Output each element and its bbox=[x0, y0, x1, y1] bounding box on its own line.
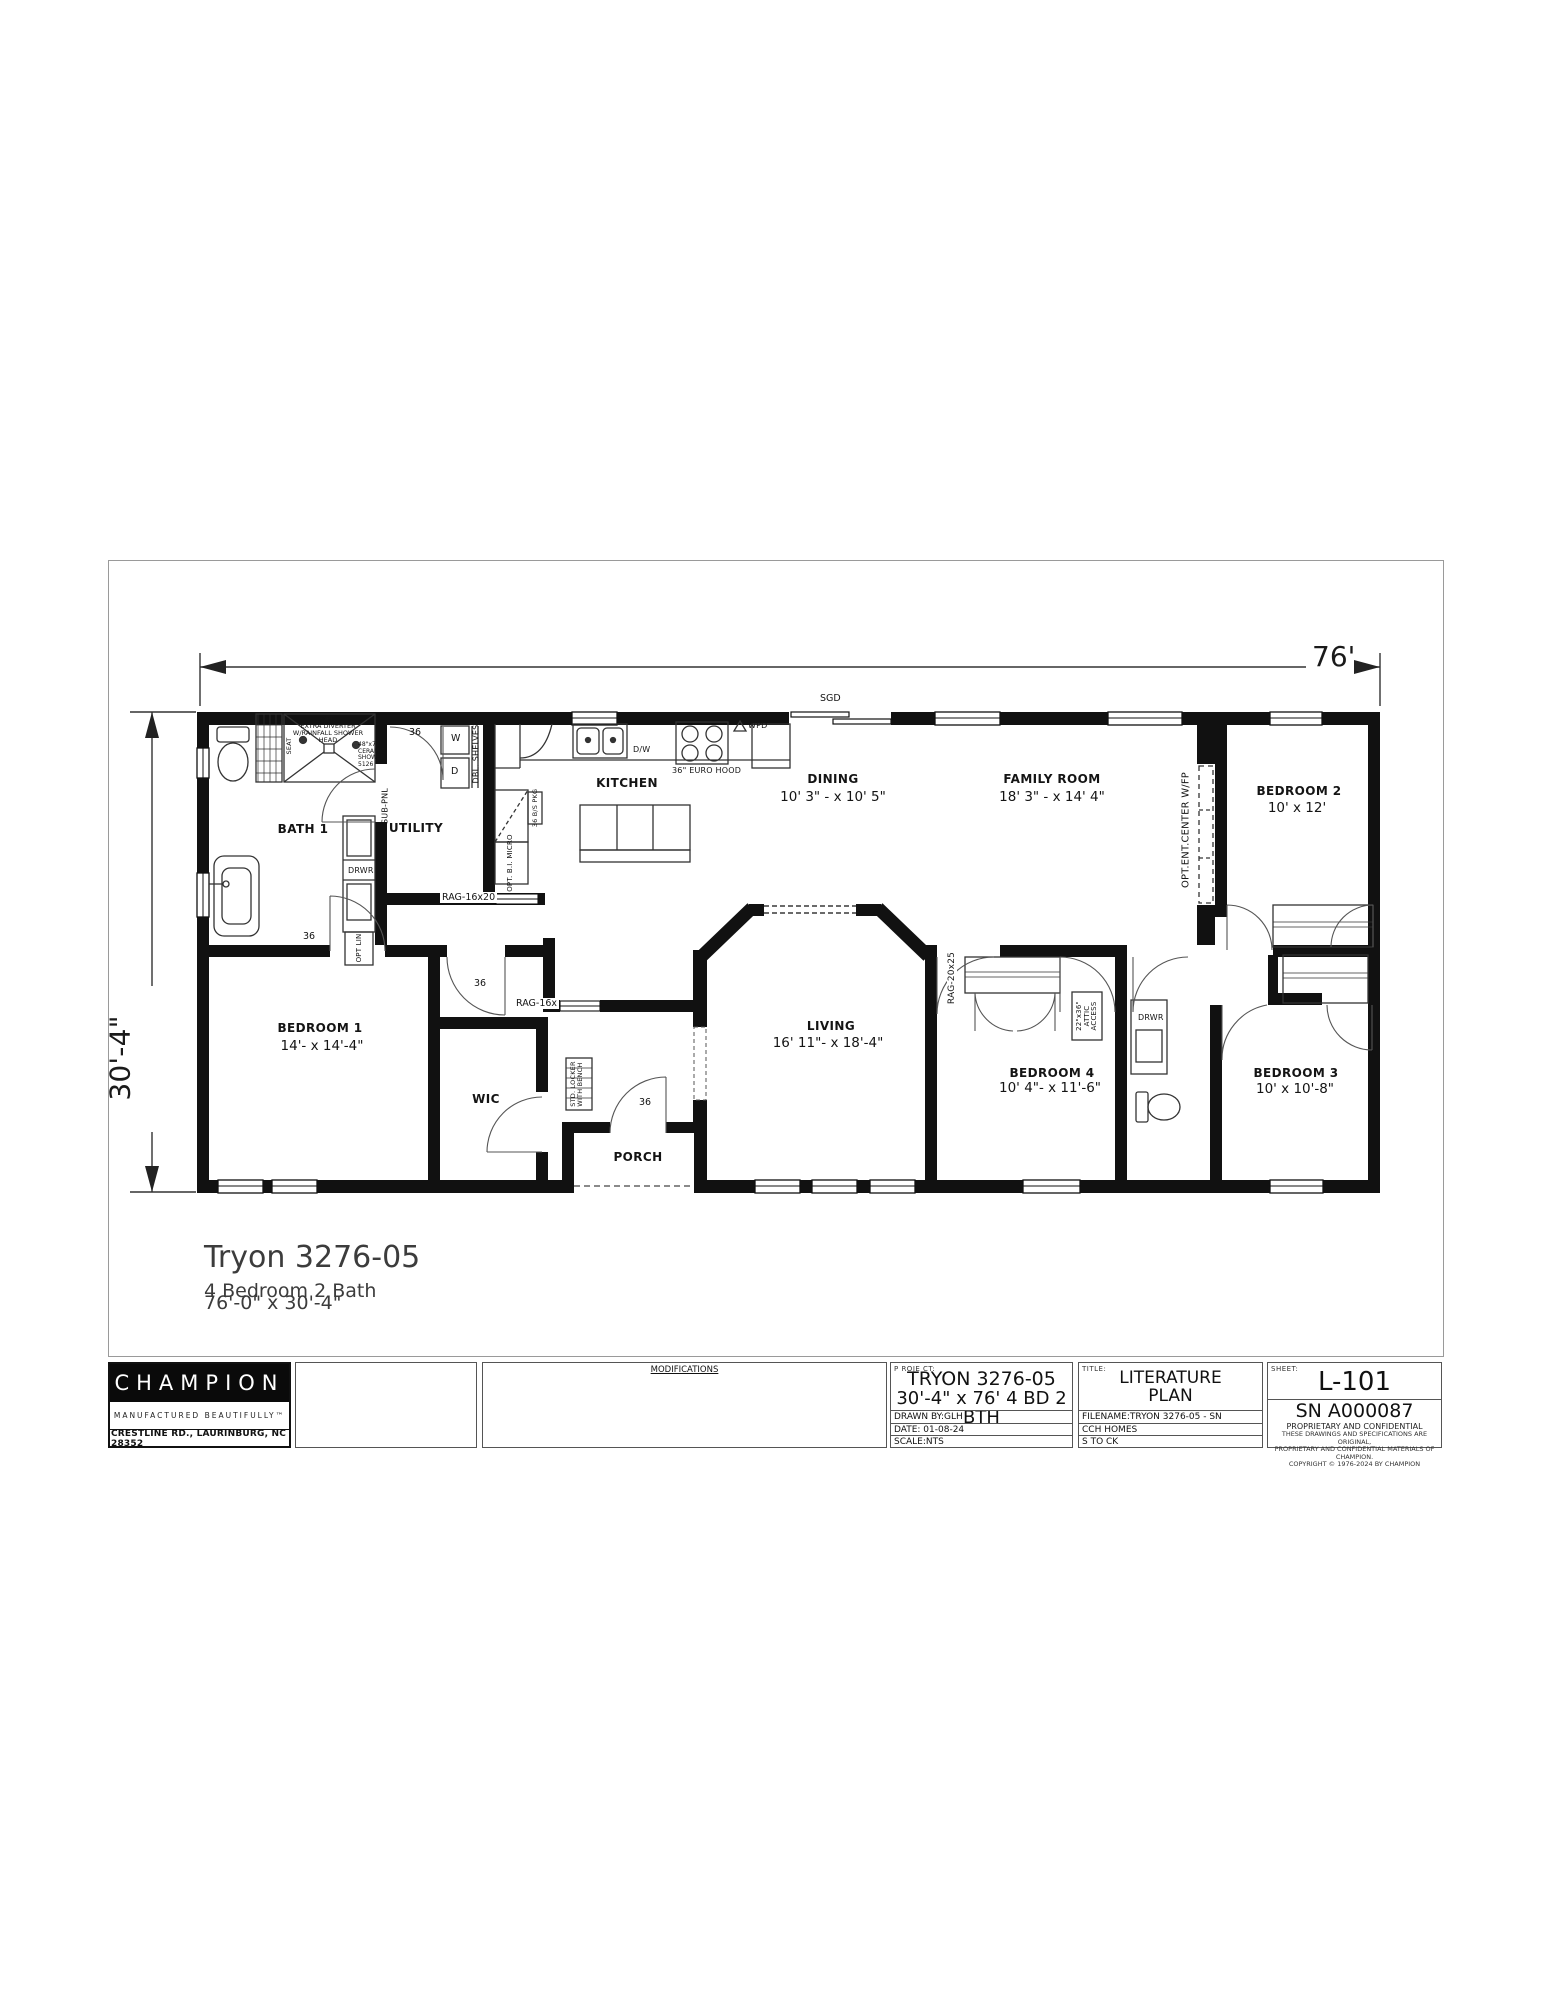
room-wic: WIC bbox=[472, 1092, 500, 1106]
room-bath1: BATH 1 bbox=[278, 822, 329, 836]
titleblock-modifications: MODIFICATIONS bbox=[482, 1362, 887, 1448]
washer-label: W bbox=[451, 733, 460, 744]
plan-callout: Tryon 3276-05 4 Bedroom 2 Bath 76'-0" x … bbox=[204, 1240, 420, 1275]
shower-note-l4: HEAD bbox=[293, 737, 363, 744]
opt-ent-center-label: OPT.ENT.CENTER W/FP bbox=[1181, 772, 1192, 888]
room-utility: UTILITY bbox=[389, 821, 443, 835]
door36-utility: 36 bbox=[409, 727, 421, 738]
room-family-dims: 18' 3" - x 14' 4" bbox=[999, 789, 1105, 805]
room-bedroom4: BEDROOM 4 bbox=[1009, 1066, 1094, 1080]
floor-plan-svg bbox=[0, 0, 1545, 2000]
dbl-shelves-label: DBL. SHELVES bbox=[472, 725, 481, 784]
sheet-fineprint-2: PROPRIETARY AND CONFIDENTIAL MATERIALS O… bbox=[1268, 1446, 1441, 1461]
windows bbox=[197, 711, 1323, 1194]
dim-depth-label: 30'-4" bbox=[104, 1015, 137, 1100]
wpd-label: WPD bbox=[748, 721, 768, 730]
seat-label: SEAT bbox=[285, 738, 293, 755]
title-label: TITLE: bbox=[1082, 1365, 1106, 1373]
dim-width-label: 76' bbox=[1312, 640, 1355, 673]
room-bedroom1-dims: 14'- x 14'-4" bbox=[281, 1038, 364, 1054]
room-kitchen: KITCHEN bbox=[596, 776, 658, 790]
drwr-bath1-label: DRWR bbox=[348, 866, 374, 875]
attic-access-label: 22"x36" ATTIC ACCESS bbox=[1076, 993, 1099, 1039]
dryer-label: D bbox=[451, 766, 458, 777]
opt-lin-label: OPT LIN bbox=[355, 934, 363, 963]
drwr-bath2-label: DRWR bbox=[1138, 1013, 1164, 1022]
sheet-fineprint-3: COPYRIGHT © 1976-2024 BY CHAMPION bbox=[1268, 1461, 1441, 1469]
room-dining-dims: 10' 3" - x 10' 5" bbox=[780, 789, 886, 805]
project-date: DATE: 01-08-24 bbox=[891, 1423, 1072, 1435]
room-dining: DINING bbox=[807, 772, 858, 786]
room-bedroom3: BEDROOM 3 bbox=[1253, 1066, 1338, 1080]
title-stock: S TO CK bbox=[1079, 1435, 1262, 1447]
room-bedroom1: BEDROOM 1 bbox=[277, 1021, 362, 1035]
modifications-label: MODIFICATIONS bbox=[483, 1365, 886, 1375]
sub-pnl-label: SUB-PNL bbox=[381, 788, 390, 824]
room-porch: PORCH bbox=[613, 1150, 662, 1164]
room-living-dims: 16' 11"- x 18'-4" bbox=[773, 1035, 884, 1051]
sgd-label: SGD bbox=[820, 693, 841, 704]
rag-20x25-label: RAG-20x25 bbox=[947, 950, 957, 1006]
project-label: P ROJE CT: bbox=[894, 1365, 935, 1373]
title-line1: LITERATURE bbox=[1079, 1369, 1262, 1387]
euro-hood-label: 36" EURO HOOD bbox=[670, 766, 743, 775]
bs-pkg-label: 36 B/S PKG bbox=[531, 789, 539, 827]
sheet-fineprint-1: THESE DRAWINGS AND SPECIFICATIONS ARE OR… bbox=[1268, 1431, 1441, 1446]
titleblock-sheet: SHEET: L-101 SN A000087 PROPRIETARY AND … bbox=[1267, 1362, 1442, 1448]
dw-label: D/W bbox=[633, 745, 650, 754]
door36-bath-hall: 36 bbox=[303, 931, 315, 942]
plan-callout-model: Tryon 3276-05 bbox=[204, 1240, 420, 1275]
room-living: LIVING bbox=[807, 1019, 855, 1033]
title-line2: PLAN bbox=[1079, 1387, 1262, 1405]
walls bbox=[197, 712, 1380, 1193]
shower-note: OPT. EXTRA DIVERTER W/RAINFALL SHOWER HE… bbox=[293, 716, 363, 744]
room-bedroom2: BEDROOM 2 bbox=[1256, 784, 1341, 798]
titleblock-title: TITLE: LITERATURE PLAN FILENAME:TRYON 32… bbox=[1078, 1362, 1263, 1448]
titleblock-champion: CHAMPION MANUFACTURED BEAUTIFULLY™ CREST… bbox=[108, 1362, 291, 1448]
sheet-label: SHEET: bbox=[1271, 1365, 1298, 1373]
rag-16x20-label: RAG-16x20 bbox=[440, 892, 497, 903]
shower-spec: 48"x72" CERAMIC SHOWER 5126 bbox=[358, 742, 385, 768]
opt-bi-micro-label: OPT. B.I. MICRO bbox=[506, 834, 514, 892]
room-bedroom2-dims: 10' x 12' bbox=[1268, 800, 1326, 816]
locker-label: STD. LOCKER WITH BENCH bbox=[570, 1061, 584, 1106]
room-family: FAMILY ROOM bbox=[1003, 772, 1100, 786]
champion-tagline: MANUFACTURED BEAUTIFULLY™ bbox=[110, 1402, 289, 1429]
door36-porch: 36 bbox=[639, 1097, 651, 1108]
room-bedroom3-dims: 10' x 10'-8" bbox=[1256, 1081, 1334, 1097]
title-company: CCH HOMES bbox=[1079, 1423, 1262, 1435]
project-scale: SCALE:NTS bbox=[891, 1435, 1072, 1447]
titleblock-empty-box bbox=[295, 1362, 477, 1448]
title-filename: FILENAME:TRYON 3276-05 - SN A000087 UPDA… bbox=[1079, 1410, 1262, 1422]
room-bedroom4-dims: 10' 4"- x 11'-6" bbox=[999, 1080, 1101, 1096]
plan-callout-size: 76'-0" x 30'-4" bbox=[204, 1292, 342, 1314]
titleblock-project: P ROJE CT: TRYON 3276-05 30'-4" x 76' 4 … bbox=[890, 1362, 1073, 1448]
locker-label-l2: WITH BENCH bbox=[577, 1061, 584, 1106]
rag-16x-label: RAG-16x bbox=[514, 998, 559, 1009]
door36-bedroom1: 36 bbox=[474, 978, 486, 989]
drawing-sheet: 76' 30'-4" BATH 1 UTILITY KITCHEN DINING… bbox=[0, 0, 1545, 2000]
project-drawn-by: DRAWN BY:GLH bbox=[891, 1410, 1072, 1422]
champion-logo: CHAMPION bbox=[110, 1364, 289, 1402]
sheet-serial: SN A000087 bbox=[1268, 1399, 1441, 1422]
shower-spec-l4: 5126 bbox=[358, 762, 385, 769]
champion-address: CRESTLINE RD., LAURINBURG, NC 28352 bbox=[110, 1429, 289, 1447]
